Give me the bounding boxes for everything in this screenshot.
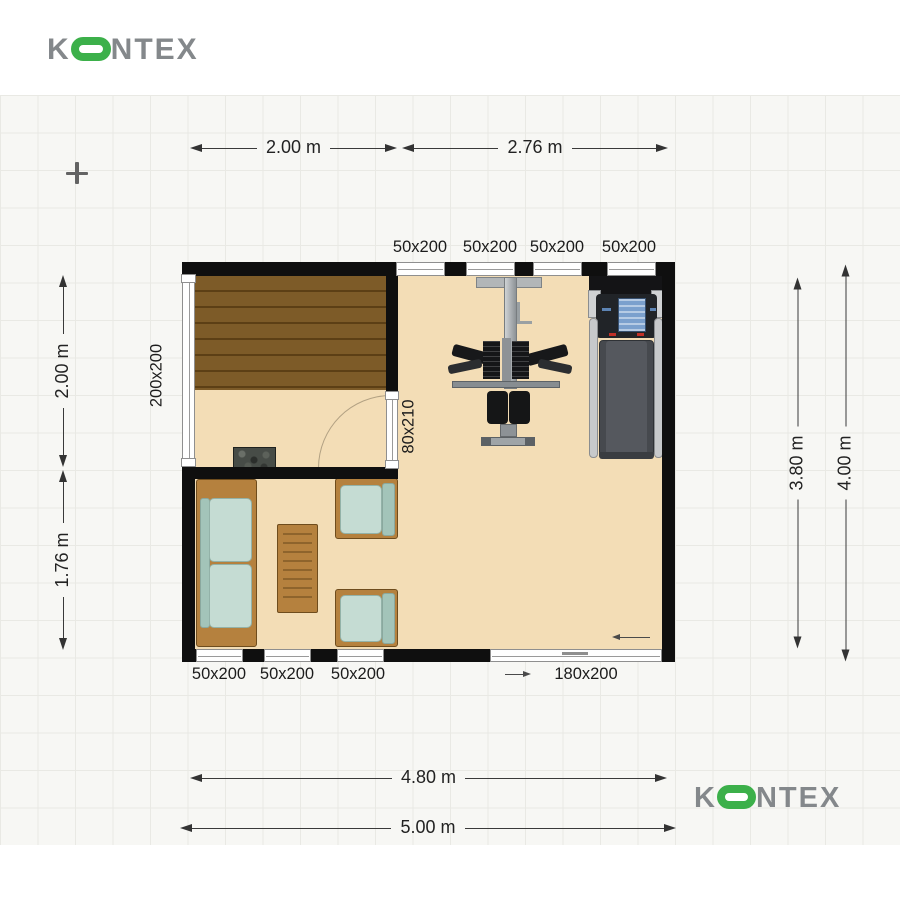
window	[337, 649, 384, 662]
treadmill	[588, 268, 665, 464]
logo-letters-ntex: NTEX	[111, 33, 199, 66]
window-label: 50x200	[589, 238, 669, 257]
floor-plan-canvas: KNTEX KNTEX	[0, 0, 900, 900]
window-label: 50x200	[247, 665, 327, 684]
dimension-line: 5.00 m	[180, 818, 676, 838]
dimension-line: 1.76 m	[53, 470, 73, 650]
window-label: 50x200	[517, 238, 597, 257]
window-label: 50x200	[380, 238, 460, 257]
treadmill-screen	[618, 298, 646, 332]
arrowhead	[59, 455, 67, 467]
armchair-backrest	[382, 483, 395, 536]
window	[607, 262, 656, 276]
gym-crossbar	[452, 381, 560, 388]
gym-arm-right	[537, 359, 572, 375]
dimension-label: 4.80 m	[392, 767, 465, 788]
dimension-line: 4.80 m	[190, 768, 667, 788]
treadmill-rail	[589, 318, 598, 458]
gym-seat-pad	[487, 391, 508, 424]
dimension-line: 2.76 m	[402, 138, 668, 158]
arrowhead	[385, 144, 397, 152]
exterior-wall-right	[662, 262, 675, 662]
gym-center-beam	[502, 338, 511, 386]
window	[264, 649, 311, 662]
armchair	[335, 478, 398, 539]
dimension-label: 4.00 m	[834, 426, 855, 499]
armchair-cushion	[340, 595, 382, 642]
interior-wall-vertical	[386, 262, 398, 395]
door-cap	[385, 460, 399, 469]
coffee-table	[277, 524, 318, 613]
interior-wall-horizontal	[182, 467, 398, 479]
logo-letter-k: K	[694, 782, 717, 814]
window	[533, 262, 582, 276]
window	[196, 649, 243, 662]
dimension-line: 2.00 m	[190, 138, 397, 158]
armchair-cushion	[340, 485, 382, 534]
gym-bench-bar	[481, 437, 535, 446]
sliding-door-handle	[562, 652, 588, 655]
arrowhead	[402, 144, 414, 152]
dimension-line: 3.80 m	[787, 277, 807, 648]
door-label: 80x210	[400, 387, 419, 467]
table-slats	[283, 533, 312, 604]
arrowhead	[59, 638, 67, 650]
gym-arm-left	[447, 359, 482, 375]
window-cap	[181, 458, 196, 467]
gym-hook	[517, 302, 532, 324]
arrowhead	[664, 824, 676, 832]
logo-o-icon	[71, 37, 111, 61]
arrowhead	[59, 470, 67, 482]
arrowhead	[190, 774, 202, 782]
slide-direction-arrow	[612, 633, 650, 641]
dimension-label: 5.00 m	[391, 817, 464, 838]
arrowhead	[656, 144, 668, 152]
gym-weight-stack	[483, 341, 500, 379]
arrowhead	[655, 774, 667, 782]
door-cap	[385, 391, 399, 400]
sofa-cushion	[209, 498, 252, 562]
treadmill-button	[650, 308, 656, 311]
armchair-backrest	[382, 593, 395, 644]
arrowhead	[190, 144, 202, 152]
arrowhead	[793, 277, 801, 289]
window	[396, 262, 445, 276]
window	[182, 276, 195, 466]
arrowhead	[59, 275, 67, 287]
arrowhead	[841, 649, 849, 661]
gym-weight-stack	[512, 341, 529, 379]
dimension-label: 2.00 m	[52, 334, 73, 407]
dimension-label: 1.76 m	[52, 523, 73, 596]
window-label: 200x200	[148, 336, 167, 416]
dimension-label: 2.76 m	[498, 137, 571, 158]
sliding-door-label: 180x200	[536, 665, 636, 684]
kontex-logo-top: KNTEX	[47, 33, 199, 67]
logo-letters-ntex: NTEX	[756, 782, 841, 814]
treadmill-belt	[599, 340, 654, 458]
sliding-door	[490, 649, 662, 662]
arrowhead	[180, 824, 192, 832]
gym-seat-pad	[509, 391, 530, 424]
dimension-label: 2.00 m	[257, 137, 330, 158]
dimension-line: 2.00 m	[53, 275, 73, 467]
hinged-door-leaf	[386, 393, 398, 467]
window-label: 50x200	[318, 665, 398, 684]
treadmill-red-light	[637, 333, 644, 336]
window	[466, 262, 515, 276]
gym-stem	[500, 424, 517, 437]
sofa	[196, 479, 257, 647]
kontex-logo-bottom: KNTEX	[694, 782, 841, 815]
crosshair-icon	[75, 162, 78, 184]
dimension-label: 3.80 m	[786, 426, 807, 499]
armchair	[335, 589, 398, 647]
sofa-cushion	[209, 564, 252, 628]
treadmill-button	[602, 308, 611, 311]
logo-o-icon	[717, 785, 756, 809]
treadmill-end-cap	[599, 452, 654, 459]
arrowhead	[793, 636, 801, 648]
slide-direction-arrow	[505, 670, 531, 678]
arrowhead	[841, 264, 849, 276]
sauna-bench-area	[195, 276, 387, 390]
logo-letter-k: K	[47, 33, 71, 66]
window-cap	[181, 274, 196, 283]
multi-gym	[440, 268, 580, 453]
dimension-line: 4.00 m	[835, 264, 855, 661]
treadmill-red-light	[609, 333, 616, 336]
